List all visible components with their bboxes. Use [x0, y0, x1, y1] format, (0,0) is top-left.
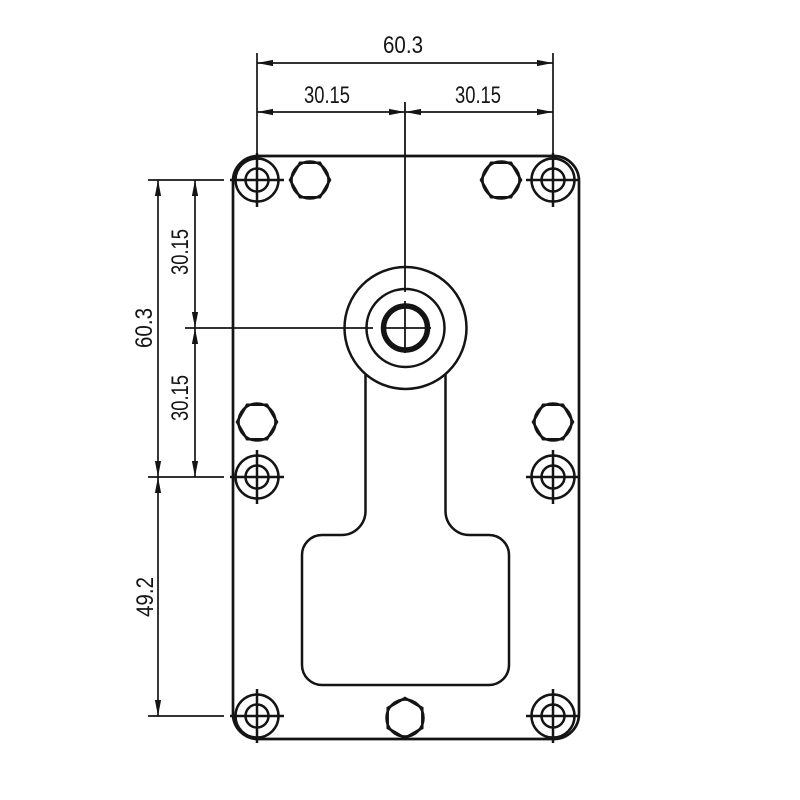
gearmotor-dimension-drawing: 60.3 30.15 30.15 60.3 30.15 30.15 49.2 [0, 0, 800, 800]
dimension-label-top-right: 30.15 [455, 82, 501, 109]
mounting-hole-top-left [230, 153, 284, 207]
hex-bolt-top-left [290, 162, 330, 199]
technical-drawing-canvas: 60.3 30.15 30.15 60.3 30.15 30.15 49.2 [0, 0, 800, 800]
plate-outline [233, 156, 579, 739]
bolt-hexagon [481, 163, 521, 198]
mounting-hole-mid-right [526, 450, 580, 504]
bolt-hexagon [290, 163, 330, 198]
mounting-hole-bottom-left [230, 689, 284, 743]
mounting-hole-bottom-right [526, 689, 580, 743]
housing-profile [302, 374, 509, 685]
dimension-label-side-bottom: 49.2 [132, 577, 159, 617]
dimension-label-top-left: 30.15 [304, 82, 350, 109]
output-shaft-boss [185, 102, 467, 389]
bolt-hexagon [237, 405, 277, 440]
mounting-hole-top-right [526, 153, 580, 207]
dimension-label-side-lower: 30.15 [167, 375, 194, 421]
dimension-label-side-total: 60.3 [131, 308, 158, 348]
gearbox-plate [233, 156, 579, 739]
hex-bolt-mid-left [237, 404, 277, 441]
hex-bolt-mid-right [533, 404, 573, 441]
bolt-hexagon [388, 698, 423, 738]
left-dimensions: 60.3 30.15 30.15 49.2 [131, 180, 224, 716]
mounting-hole-mid-left [230, 450, 284, 504]
dimension-label-side-upper: 30.15 [167, 229, 194, 275]
bolt-hexagon [533, 405, 573, 440]
hex-bolt-top-right [481, 162, 521, 199]
dimension-label-top-total: 60.3 [383, 32, 423, 59]
hex-bolt-bottom-center [387, 698, 424, 738]
